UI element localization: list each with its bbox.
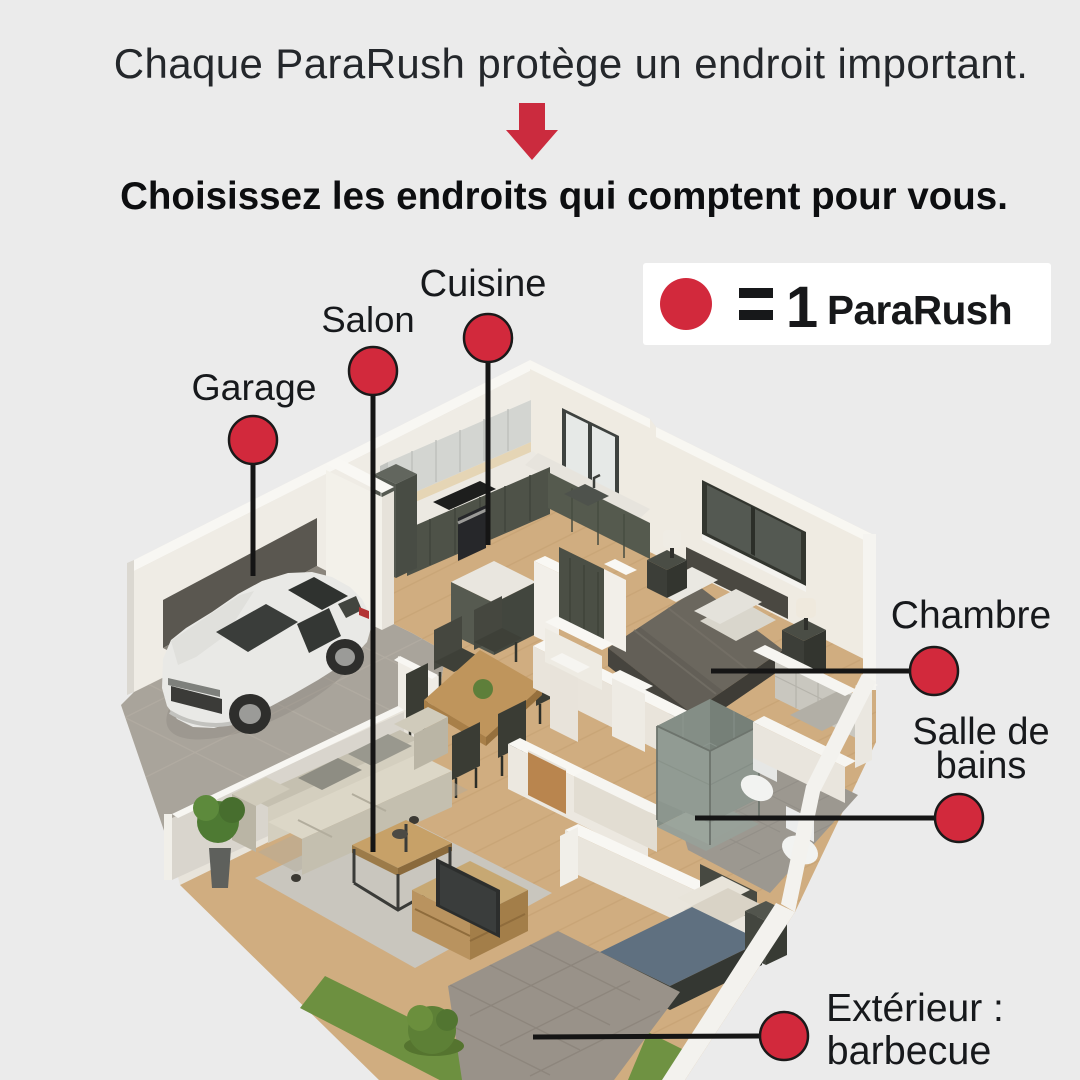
svg-text:Chambre: Chambre [891,594,1051,637]
svg-text:Chaque ParaRush protège un end: Chaque ParaRush protège un endroit impor… [114,40,1029,87]
svg-text:ParaRush: ParaRush [827,287,1012,333]
svg-text:Extérieur :: Extérieur : [826,987,1004,1030]
svg-text:barbecue: barbecue [827,1029,992,1073]
svg-text:1: 1 [786,275,818,340]
svg-text:Salon: Salon [321,299,414,340]
svg-text:Choisissez les endroits qui co: Choisissez les endroits qui comptent pou… [120,175,1008,218]
svg-text:Garage: Garage [191,366,316,408]
svg-text:Cuisine: Cuisine [420,263,547,305]
svg-text:bains: bains [936,745,1027,787]
